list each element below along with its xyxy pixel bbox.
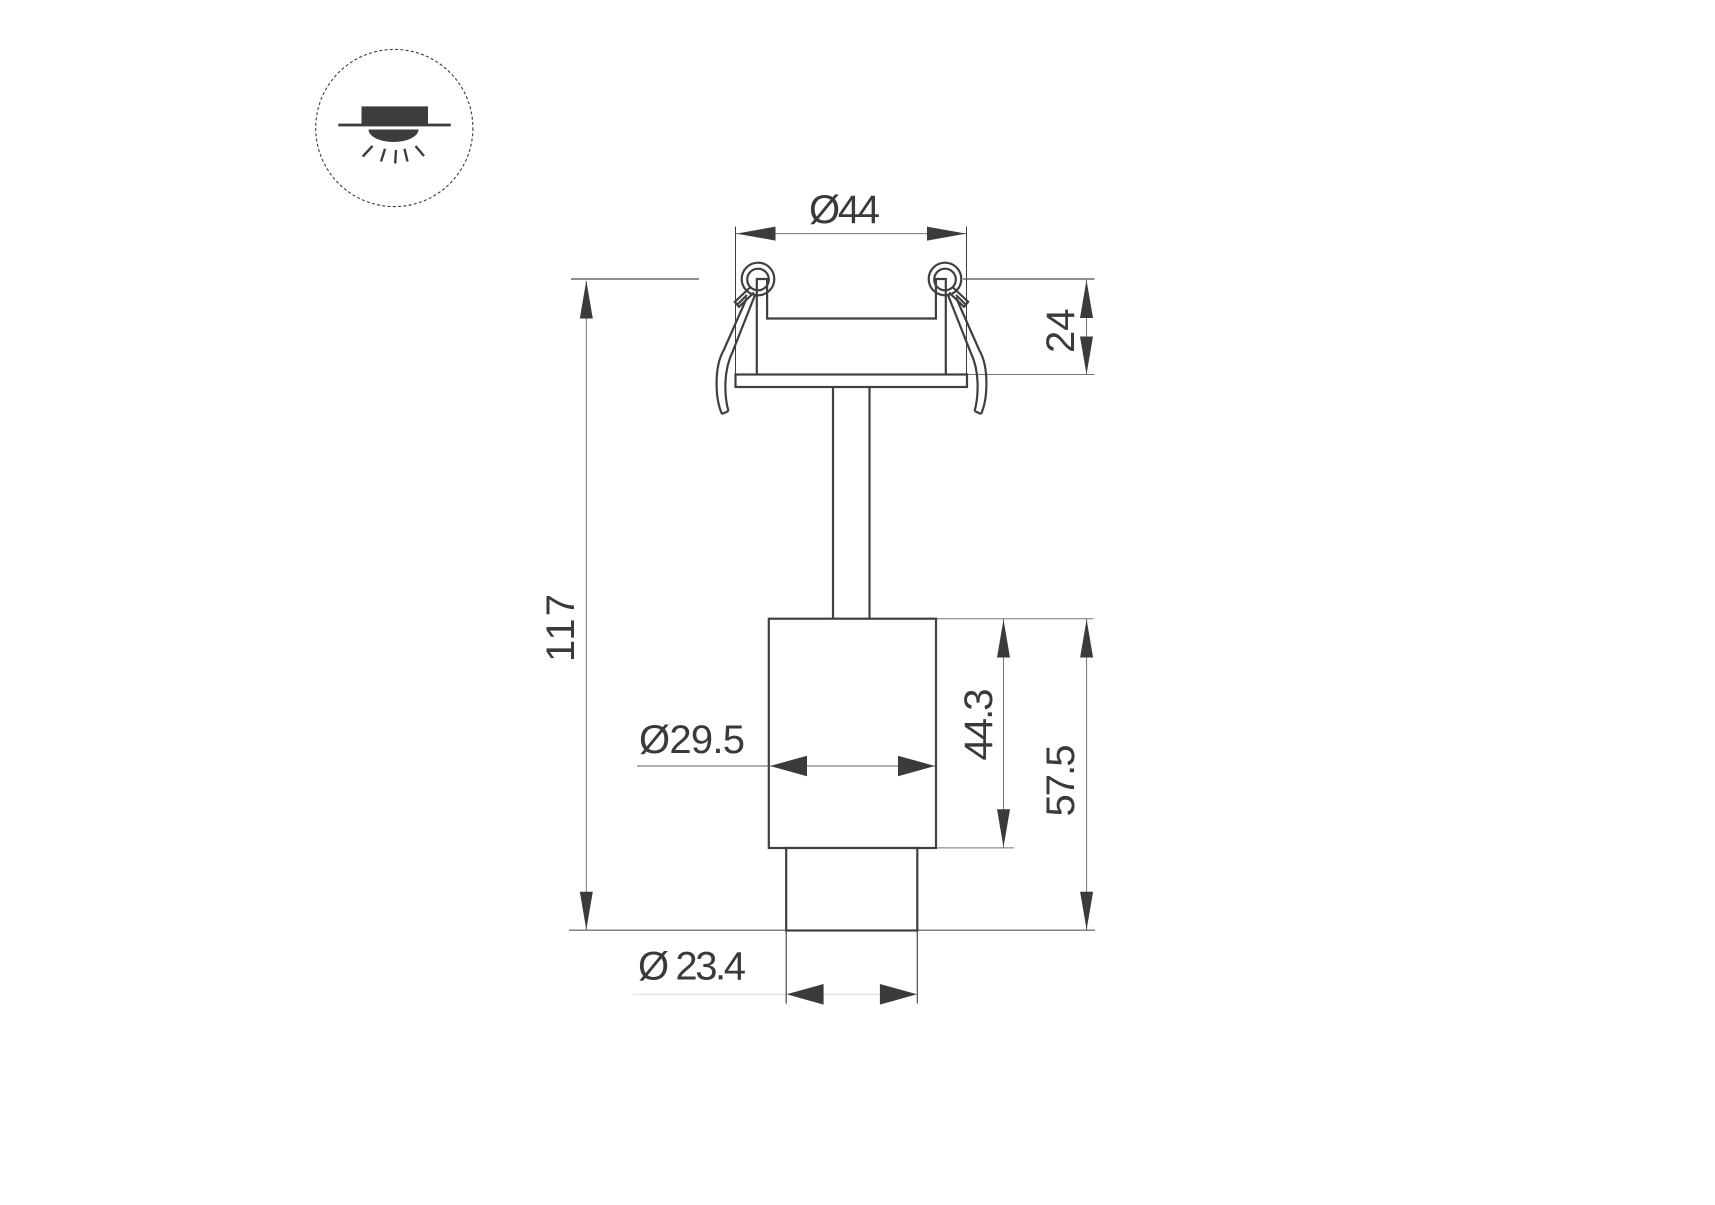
- svg-text:Ø29.5: Ø29.5: [639, 718, 745, 762]
- svg-text:Ø 23.4: Ø 23.4: [638, 945, 746, 989]
- svg-text:117: 117: [539, 594, 583, 662]
- svg-text:Ø44: Ø44: [809, 188, 880, 232]
- svg-text:57.5: 57.5: [1039, 745, 1083, 817]
- svg-text:44.3: 44.3: [957, 689, 1001, 761]
- svg-text:24: 24: [1039, 309, 1083, 354]
